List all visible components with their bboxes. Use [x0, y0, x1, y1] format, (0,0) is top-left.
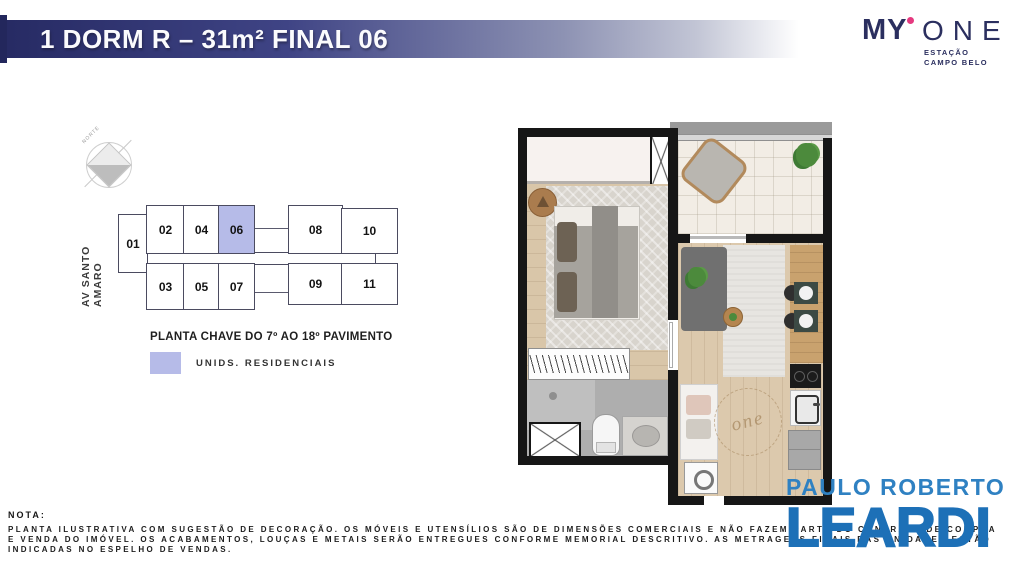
place-setting — [794, 282, 818, 304]
legend-swatch — [150, 352, 181, 374]
keyplan-unit-03: 03 — [146, 263, 185, 310]
keyplan-connector — [253, 292, 288, 293]
page: 1 DORM R – 31m² FINAL 06 MY ONE ESTAÇÃO … — [0, 0, 1024, 571]
brand-pink-dot-icon — [907, 17, 914, 24]
wall — [668, 370, 678, 505]
compass-icon: NORTE — [84, 140, 132, 188]
brand-subtitle-line2: CAMPO BELO — [924, 58, 988, 68]
keyplan-unit-01: 01 — [118, 214, 148, 273]
keyplan-unit-04: 04 — [183, 205, 220, 254]
bedroom-window — [527, 135, 650, 184]
sofa — [681, 247, 727, 331]
side-table — [528, 188, 557, 217]
washer-door-icon — [694, 470, 714, 490]
brand-subtitle: ESTAÇÃO CAMPO BELO — [924, 48, 988, 68]
banner-edge — [0, 15, 7, 63]
shower-box-icon — [529, 422, 581, 458]
keyplan-unit-05: 05 — [183, 263, 220, 310]
realtor-brand: LEARDI — [786, 501, 1024, 553]
wall — [678, 234, 690, 243]
keyplan-unit-10: 10 — [341, 208, 398, 254]
washing-machine — [684, 462, 718, 494]
toilet-tank — [596, 442, 616, 453]
brand-subtitle-line1: ESTAÇÃO — [924, 48, 988, 58]
hanging-chair — [678, 135, 751, 208]
keyplan-connector — [253, 228, 288, 229]
fridge-door-line — [789, 449, 820, 450]
bed-runner — [592, 206, 618, 318]
brand-one-text: ONE — [922, 15, 1010, 47]
keyplan-unit-07: 07 — [218, 263, 255, 310]
wall — [668, 128, 678, 320]
cooktop — [790, 364, 821, 388]
street-label: AV SANTO AMARO — [80, 203, 104, 307]
plate-icon — [799, 286, 813, 300]
faucet-icon — [813, 403, 820, 406]
keyplan-title: PLANTA CHAVE DO 7º AO 18º PAVIMENTO — [150, 331, 393, 343]
plant-icon — [796, 143, 818, 167]
toilet — [592, 414, 620, 456]
balcony-rail — [670, 134, 832, 141]
bedroom — [527, 184, 668, 380]
burner-icon — [807, 371, 818, 382]
realtor-logo: PAULO ROBERTO LEARDI — [786, 474, 1024, 553]
cutting-board — [686, 395, 711, 415]
living-kitchen — [678, 243, 823, 496]
pillow — [557, 272, 577, 312]
note-label: NOTA: — [8, 510, 46, 520]
brand-logo: MY ONE ESTAÇÃO CAMPO BELO — [860, 14, 1020, 66]
page-title: 1 DORM R – 31m² FINAL 06 — [40, 20, 388, 58]
cutting-board — [686, 419, 711, 439]
compass-north-label: NORTE — [81, 125, 101, 145]
kitchen-sink — [790, 390, 821, 426]
plant-icon — [688, 267, 706, 287]
brand-my-text: MY — [862, 14, 908, 47]
shower-head-icon — [549, 392, 557, 400]
legend-label: UNIDS. RESIDENCIAIS — [196, 358, 336, 369]
place-setting — [794, 310, 818, 332]
key-plan: 01 02 04 06 03 05 07 08 10 09 11 — [115, 200, 407, 315]
plate-icon — [799, 314, 813, 328]
bathroom-sink — [622, 416, 668, 456]
keyplan-unit-09: 09 — [288, 263, 343, 305]
balcony-sliding-door — [690, 236, 746, 239]
burner-icon — [794, 371, 805, 382]
refrigerator — [788, 430, 821, 470]
entry-door-gap — [704, 496, 724, 505]
bedroom-door — [669, 322, 673, 368]
keyplan-unit-08: 08 — [288, 205, 343, 254]
exterior-strip — [670, 122, 832, 134]
sink-basin — [632, 425, 660, 447]
wall — [823, 138, 832, 505]
island-counter — [680, 384, 718, 460]
floor-plan: one — [518, 122, 832, 505]
kitchen-counter — [790, 245, 823, 363]
wall — [518, 128, 670, 137]
wardrobe — [528, 348, 630, 380]
pillow — [557, 222, 577, 262]
balcony — [678, 141, 823, 234]
coffee-table — [723, 307, 743, 327]
wall — [518, 128, 527, 465]
sink-basin — [795, 395, 819, 424]
wall — [746, 234, 832, 243]
decor-icon — [537, 196, 549, 207]
keyplan-unit-06-highlighted: 06 — [218, 205, 255, 254]
keyplan-unit-11: 11 — [341, 263, 398, 305]
keyplan-unit-02: 02 — [146, 205, 185, 254]
wall — [518, 456, 678, 465]
plant-icon — [729, 313, 737, 321]
